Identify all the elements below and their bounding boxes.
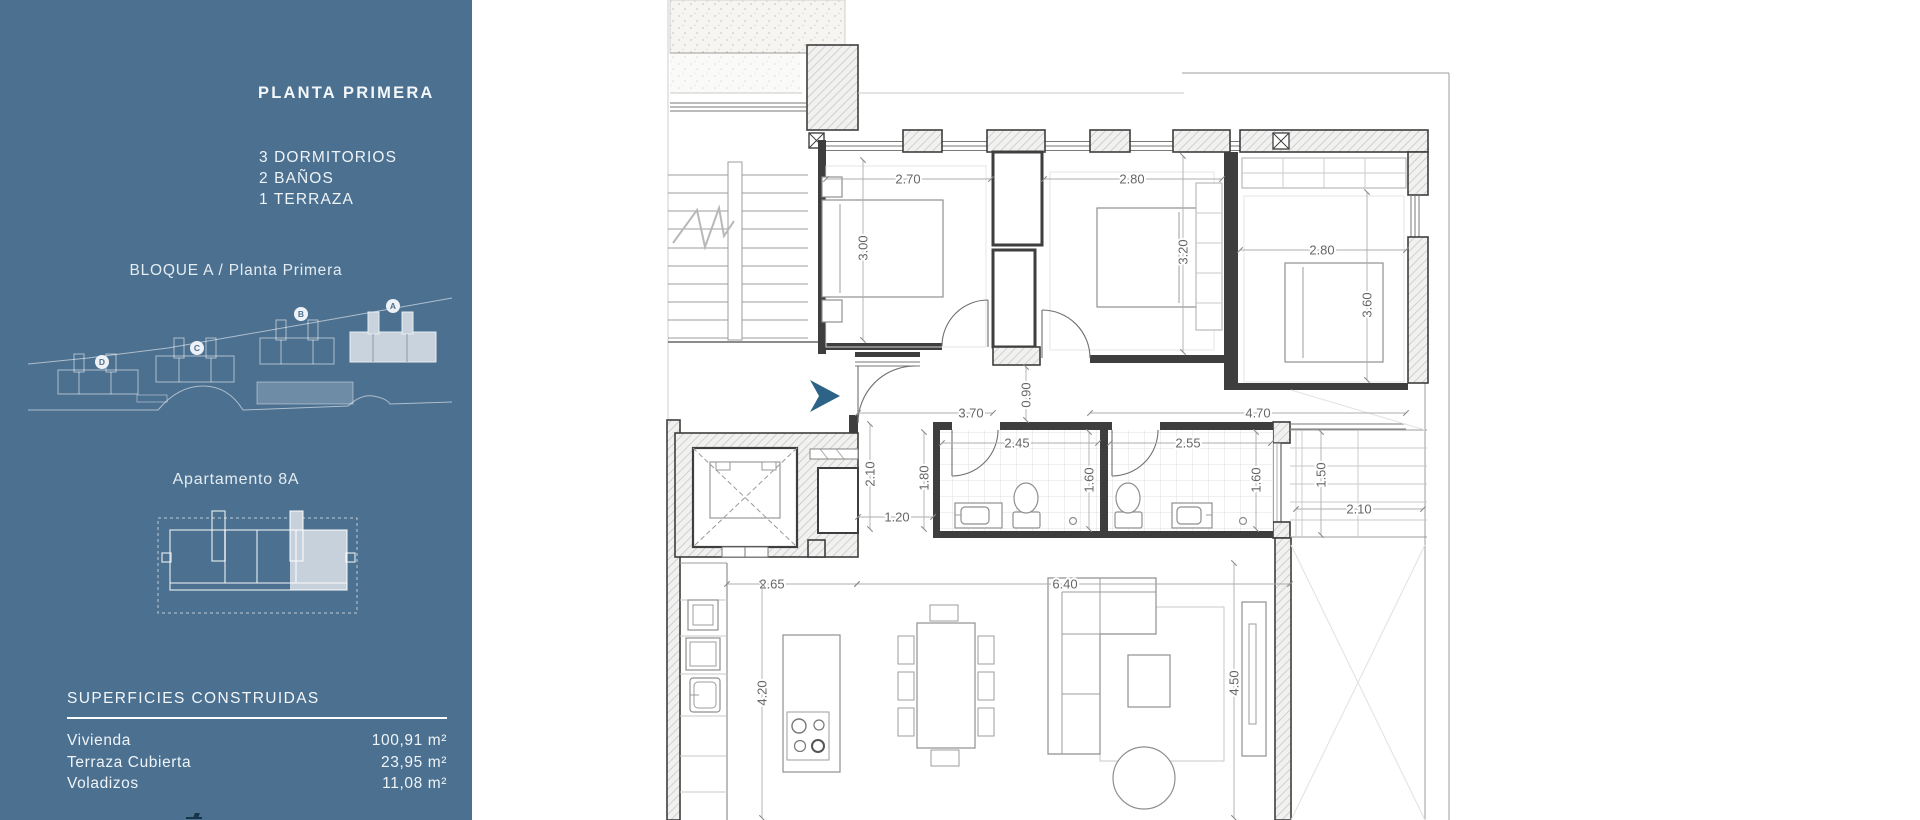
- dim-bath1-depth: 1.60: [1082, 467, 1097, 492]
- kitchen-island: [783, 635, 840, 772]
- sidebar-panel: PLANTA PRIMERA 3 DORMITORIOS 2 BAÑOS 1 T…: [0, 0, 472, 820]
- stairwell: [668, 162, 818, 342]
- surfaces-heading: SUPERFICIES CONSTRUIDAS: [67, 690, 447, 708]
- surface-value: 11,08 m²: [382, 773, 447, 795]
- dim-hall-passage: 1.20: [884, 510, 909, 525]
- surface-value: 23,95 m²: [381, 752, 447, 774]
- chair: [898, 672, 914, 700]
- surface-row-voladizos: Voladizos 11,08 m²: [67, 773, 447, 795]
- kitchen-sink: [690, 678, 720, 712]
- bedroom-3: [1242, 158, 1406, 382]
- svg-text:C: C: [194, 343, 200, 353]
- dim-bedroom3-depth: 3.60: [1360, 292, 1375, 317]
- dim-bedroom3-width: 2.80: [1309, 243, 1334, 258]
- surface-label: Vivienda: [67, 730, 131, 752]
- dim-steps-width: 2.10: [1346, 502, 1371, 517]
- surface-row-terraza: Terraza Cubierta 23,95 m²: [67, 752, 447, 774]
- dim-bath2-width: 2.55: [1175, 436, 1200, 451]
- nightstand: [822, 300, 842, 322]
- dim-bedroom1-width: 2.70: [895, 172, 920, 187]
- feature-terrace: 1 TERRAZA: [259, 189, 397, 210]
- nightstand: [822, 177, 842, 197]
- dining-table: [917, 623, 975, 748]
- dim-living-width: 6.40: [1052, 577, 1077, 592]
- sink-vanity: [955, 503, 1002, 528]
- surface-label: Terraza Cubierta: [67, 752, 191, 774]
- cropped-text-fragment: [186, 813, 212, 820]
- site-block-a-highlighted: A: [350, 299, 436, 362]
- chair: [978, 636, 994, 664]
- surfaces-section: SUPERFICIES CONSTRUIDAS Vivienda 100,91 …: [67, 690, 447, 795]
- block-title: BLOQUE A / Planta Primera: [10, 262, 462, 280]
- dim-bedroom2-depth: 3.20: [1176, 239, 1191, 264]
- tv-sideboard: [1242, 602, 1266, 756]
- site-block-c: C: [156, 338, 234, 382]
- bedroom-2: [1042, 172, 1222, 358]
- entry-door: [858, 366, 915, 423]
- floor-drain: [1240, 518, 1247, 525]
- bedroom-1: [822, 166, 988, 347]
- dim-bath1-width: 2.45: [1004, 436, 1029, 451]
- dim-kitchen-depth: 4.20: [755, 680, 770, 705]
- chair: [898, 708, 914, 736]
- apartment-title: Apartamento 8A: [10, 471, 462, 489]
- chair: [931, 750, 959, 766]
- surface-label: Voladizos: [67, 773, 139, 795]
- bedroom1-door: [942, 300, 988, 346]
- elevator-niche: [818, 468, 858, 533]
- neighbor-structure: [670, 0, 1184, 148]
- feature-bedrooms: 3 DORMITORIOS: [259, 147, 397, 168]
- site-structure: [137, 395, 167, 402]
- surface-row-vivienda: Vivienda 100,91 m²: [67, 730, 447, 752]
- feature-list: 3 DORMITORIOS 2 BAÑOS 1 TERRAZA: [259, 147, 397, 210]
- chair: [898, 636, 914, 664]
- dim-kitchen-width: 2.65: [759, 577, 784, 592]
- apartment-location-diagram: [150, 503, 365, 620]
- structural-pillar: [807, 45, 858, 130]
- dim-bedroom1-depth: 3.00: [856, 235, 871, 260]
- dim-steps-depth: 1.50: [1314, 462, 1329, 487]
- dim-bath2-depth: 1.60: [1249, 467, 1264, 492]
- toilet: [1115, 483, 1142, 528]
- chair: [978, 708, 994, 736]
- kitchen-appliance: [686, 638, 720, 670]
- feature-bathrooms: 2 BAÑOS: [259, 168, 397, 189]
- sink-vanity: [1172, 503, 1212, 528]
- wardrobe: [1196, 183, 1222, 330]
- svg-text:A: A: [390, 301, 396, 311]
- site-pool: [257, 382, 353, 404]
- surfaces-divider: [67, 717, 447, 719]
- stair-break-line: [673, 208, 734, 247]
- site-plan-diagram: D C B: [28, 292, 452, 442]
- wardrobe-column-lower: [993, 250, 1035, 347]
- chair: [978, 672, 994, 700]
- dining-area: [898, 605, 994, 766]
- dim-hall-door: 0.90: [1019, 382, 1034, 407]
- dim-living-depth: 4.50: [1227, 670, 1242, 695]
- floor-title: PLANTA PRIMERA: [258, 84, 435, 103]
- bedroom2-door: [1042, 310, 1090, 358]
- dim-hall-right: 4.70: [1245, 406, 1270, 421]
- floor-plan-page: PLANTA PRIMERA 3 DORMITORIOS 2 BAÑOS 1 T…: [0, 0, 1920, 820]
- dim-hall-left: 3.70: [958, 406, 983, 421]
- dim-bath-entry-depth: 1.80: [917, 465, 932, 490]
- floor-drain: [1070, 518, 1077, 525]
- entry-arrow-icon: [810, 380, 840, 412]
- exterior-steps: [1290, 430, 1427, 537]
- surface-value: 100,91 m²: [372, 730, 447, 752]
- chair: [930, 605, 958, 621]
- elevator: [675, 433, 858, 557]
- site-block-b: B: [260, 307, 334, 364]
- wardrobe-column-upper: [993, 152, 1042, 245]
- dim-hall-depth: 2.10: [863, 461, 878, 486]
- dim-bedroom2-width: 2.80: [1119, 172, 1144, 187]
- svg-text:B: B: [298, 309, 304, 319]
- svg-text:D: D: [99, 357, 105, 367]
- floor-plan-drawing: 2.70 3.00 2.80 3.20 2.80 3.60 3.70 0.90 …: [472, 0, 1920, 820]
- coffee-table: [1128, 655, 1170, 707]
- toilet: [1013, 483, 1040, 528]
- round-pouf: [1113, 747, 1175, 809]
